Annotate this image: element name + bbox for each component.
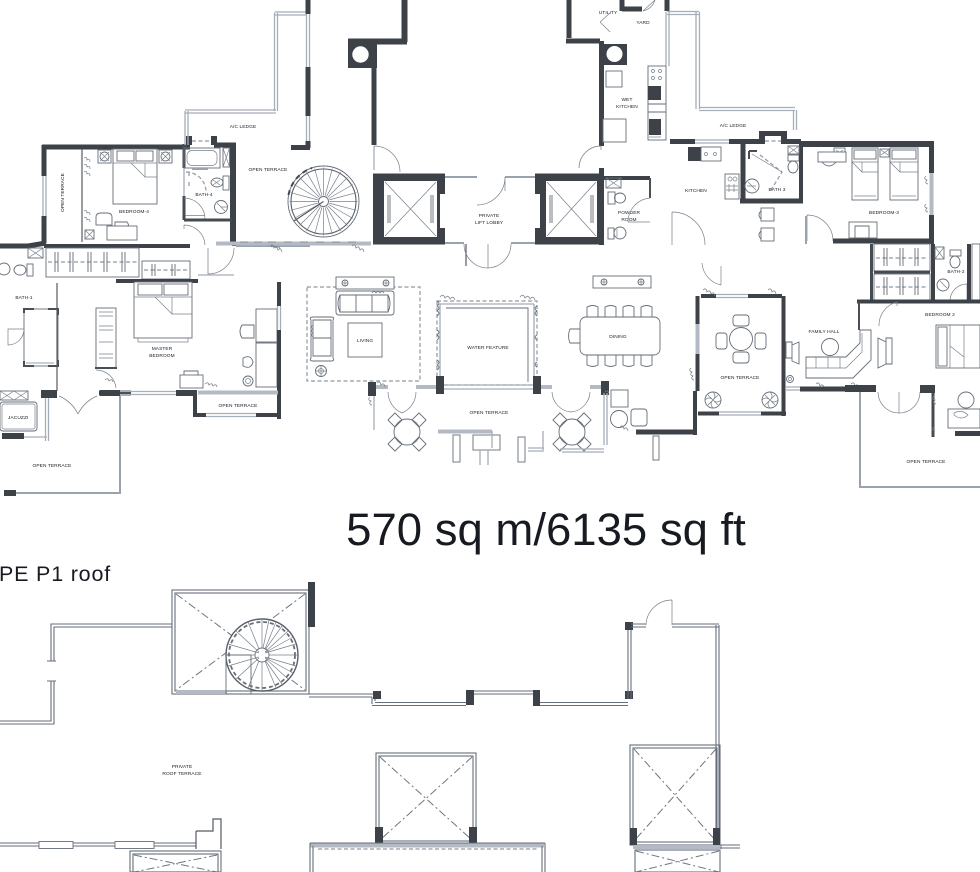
svg-text:OPEN TERRACE: OPEN TERRACE xyxy=(249,167,288,173)
svg-text:FAMILY HALL: FAMILY HALL xyxy=(808,329,839,335)
svg-text:A/C LEDGE: A/C LEDGE xyxy=(230,124,257,130)
svg-text:BEDROOM: BEDROOM xyxy=(149,353,175,359)
svg-text:OPEN TERRACE: OPEN TERRACE xyxy=(470,410,509,416)
svg-text:UTILITY: UTILITY xyxy=(599,10,618,16)
svg-text:BEDROOM 2: BEDROOM 2 xyxy=(925,312,955,318)
svg-text:BATH-2: BATH-2 xyxy=(947,269,965,275)
svg-text:OPEN TERRACE: OPEN TERRACE xyxy=(219,403,258,409)
svg-text:MASTER: MASTER xyxy=(152,346,173,352)
svg-text:BATH-4: BATH-4 xyxy=(195,192,213,198)
svg-text:YARD: YARD xyxy=(636,20,650,26)
svg-text:ROOF TERRACE: ROOF TERRACE xyxy=(162,771,201,777)
svg-text:DINING: DINING xyxy=(609,334,627,340)
svg-text:PRIVATE: PRIVATE xyxy=(172,764,193,770)
svg-text:JACUZZI: JACUZZI xyxy=(8,415,28,421)
svg-text:A/C LEDGE: A/C LEDGE xyxy=(720,123,747,129)
svg-text:PRIVATE: PRIVATE xyxy=(479,213,500,219)
svg-text:WET: WET xyxy=(622,97,633,103)
svg-text:BEDROOM-3: BEDROOM-3 xyxy=(869,210,899,216)
svg-text:OPEN TERRACE: OPEN TERRACE xyxy=(721,375,760,381)
svg-text:WATER FEATURE: WATER FEATURE xyxy=(467,345,508,351)
svg-text:BATH-1: BATH-1 xyxy=(15,295,33,301)
svg-text:KITCHEN: KITCHEN xyxy=(685,188,707,194)
svg-text:PE P1 roof: PE P1 roof xyxy=(0,562,111,586)
svg-text:OPEN TERRACE: OPEN TERRACE xyxy=(33,463,72,469)
svg-text:LIFT LOBBY: LIFT LOBBY xyxy=(475,220,504,226)
svg-text:BEDROOM-4: BEDROOM-4 xyxy=(119,209,149,215)
svg-text:LIVING: LIVING xyxy=(357,338,373,344)
svg-text:570 sq m/6135 sq ft: 570 sq m/6135 sq ft xyxy=(346,504,746,555)
svg-text:BATH 3: BATH 3 xyxy=(768,187,785,193)
svg-text:OPEN TERRACE: OPEN TERRACE xyxy=(60,173,66,212)
svg-text:KITCHEN: KITCHEN xyxy=(616,104,638,110)
svg-text:OPEN TERRACE: OPEN TERRACE xyxy=(907,459,946,465)
